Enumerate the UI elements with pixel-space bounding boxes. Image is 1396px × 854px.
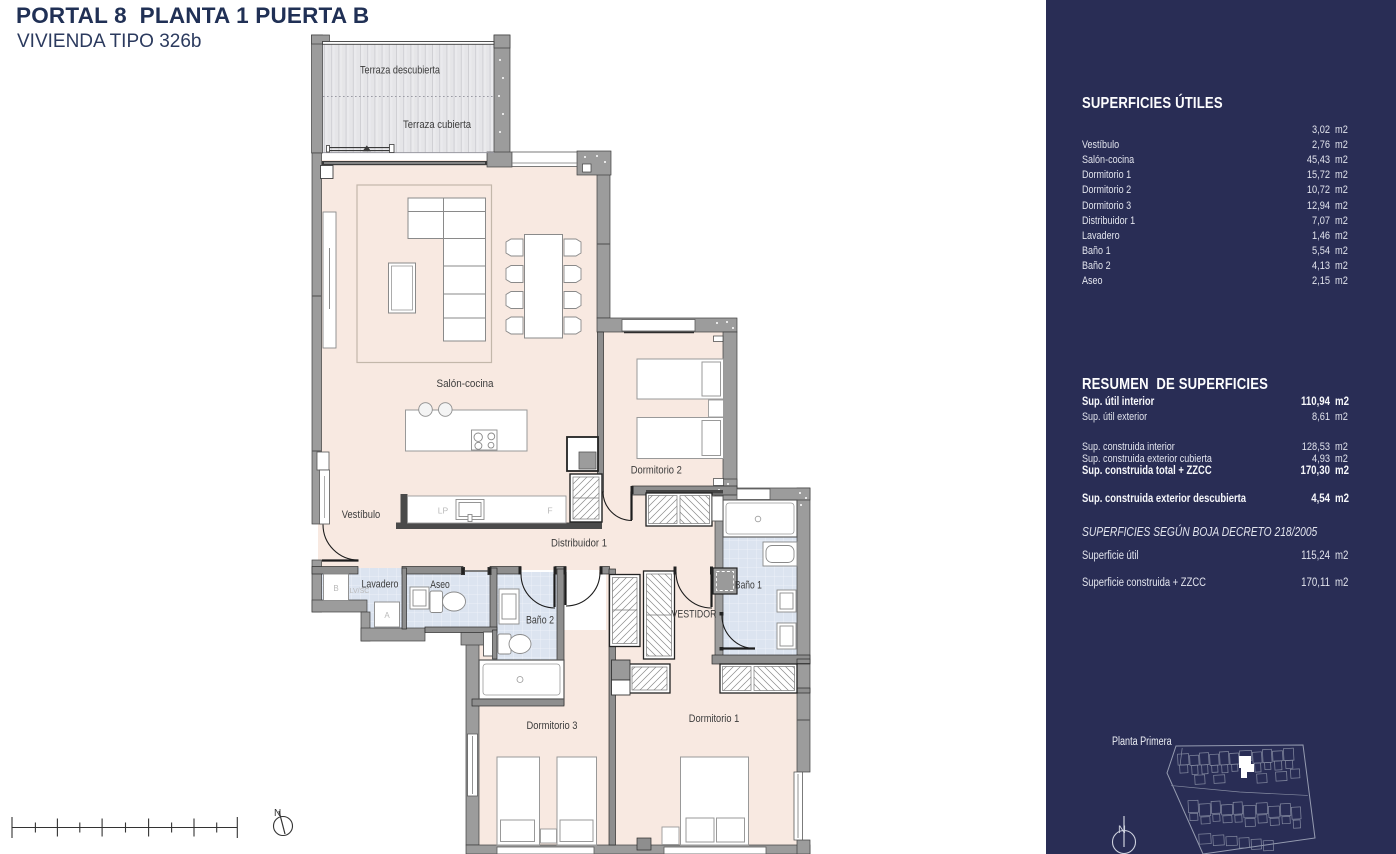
svg-text:B: B: [333, 584, 338, 593]
svg-text:Baño 1: Baño 1: [735, 580, 762, 592]
svg-text:Vestíbulo: Vestíbulo: [342, 509, 381, 521]
svg-text:Dormitorio 1: Dormitorio 1: [689, 713, 740, 725]
svg-text:Terraza descubierta: Terraza descubierta: [360, 65, 441, 77]
svg-text:Dormitorio 2: Dormitorio 2: [631, 465, 682, 477]
svg-text:Terraza cubierta: Terraza cubierta: [403, 119, 472, 131]
svg-text:Lavadero: Lavadero: [362, 579, 399, 591]
svg-text:N: N: [1118, 824, 1126, 836]
svg-text:Dormitorio 3: Dormitorio 3: [527, 720, 578, 732]
svg-text:N: N: [274, 808, 281, 819]
svg-text:A: A: [384, 611, 390, 620]
svg-text:Salón-cocina: Salón-cocina: [437, 378, 495, 390]
svg-text:Aseo: Aseo: [430, 579, 450, 591]
svg-text:VESTIDOR: VESTIDOR: [672, 609, 717, 621]
svg-text:Baño 2: Baño 2: [526, 615, 554, 627]
svg-text:F: F: [547, 506, 552, 516]
svg-text:LP: LP: [438, 506, 449, 516]
svg-text:Distribuidor 1: Distribuidor 1: [551, 538, 607, 550]
